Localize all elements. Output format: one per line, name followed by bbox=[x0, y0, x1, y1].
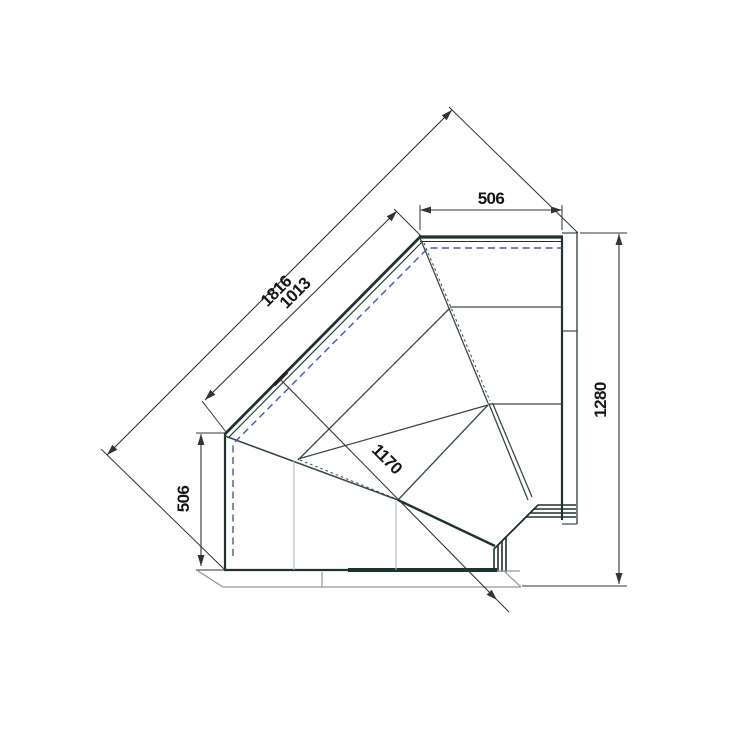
dim-start-tick bbox=[274, 372, 287, 385]
technical-drawing-canvas: 506 1816 1013 506 1280 bbox=[0, 0, 750, 750]
dim-label-overall-right-depth: 1280 bbox=[591, 382, 610, 418]
dim-label-top-end-width: 506 bbox=[478, 189, 505, 208]
dimension-overall-right-depth: 1280 bbox=[522, 233, 627, 586]
dim-label-left-end-width: 506 bbox=[174, 486, 193, 513]
dimension-top-end-width: 506 bbox=[420, 189, 562, 230]
dimension-overall-front-width: 1816 bbox=[101, 107, 578, 569]
radial-to-bumper-a bbox=[489, 404, 528, 500]
dimension-serve-over-depth: 1170 bbox=[274, 372, 509, 612]
base-plinth bbox=[198, 571, 521, 587]
serve-edge-hidden-line bbox=[300, 460, 394, 498]
radial-to-bumper-b bbox=[493, 403, 533, 497]
radial-from-serve-corner bbox=[398, 405, 488, 500]
serve-corner-bumper bbox=[494, 505, 576, 572]
radial-hidden-line bbox=[424, 243, 490, 401]
glass-front-edge bbox=[225, 237, 420, 434]
serve-edge-corner bbox=[398, 500, 495, 546]
radial-from-top-corner bbox=[420, 238, 488, 403]
dimension-left-end-width: 506 bbox=[174, 433, 227, 570]
right-wall-panel bbox=[562, 232, 577, 524]
dimension-glass-front-width: 1013 bbox=[202, 209, 421, 432]
corner-counter-plan-drawing: 506 1816 1013 506 1280 bbox=[0, 0, 750, 750]
glass-front-edge-inner bbox=[228, 241, 423, 438]
dim-label-serve-over-depth: 1170 bbox=[368, 440, 406, 478]
